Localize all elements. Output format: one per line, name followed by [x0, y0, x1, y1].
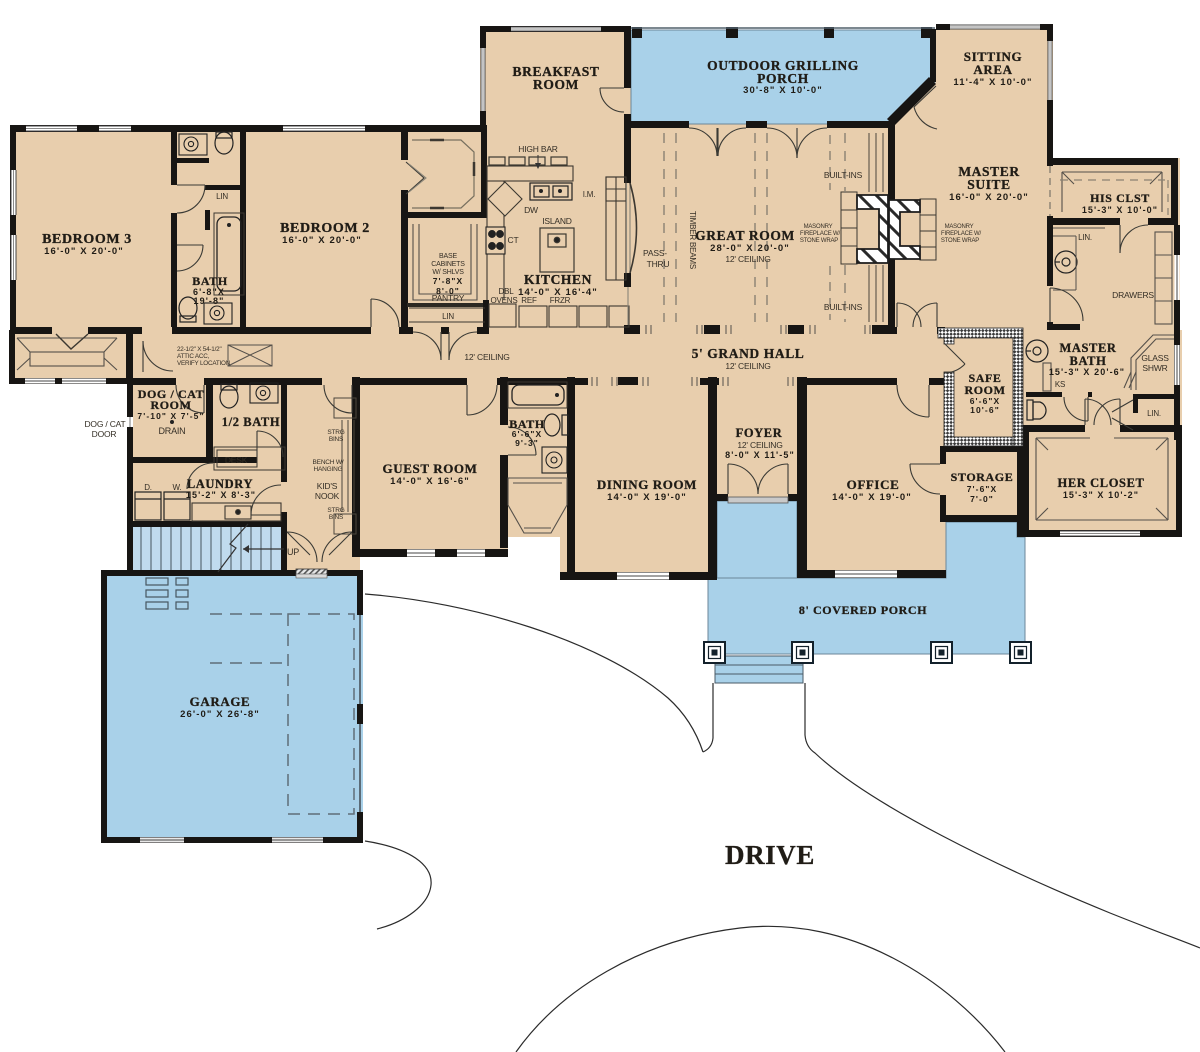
svg-text:HER CLOSET: HER CLOSET	[1058, 476, 1145, 490]
svg-text:MASTER: MASTER	[1059, 341, 1116, 355]
svg-text:1/2 BATH: 1/2 BATH	[222, 415, 280, 429]
svg-text:BENCH W/: BENCH W/	[313, 459, 344, 466]
svg-text:GREAT ROOM: GREAT ROOM	[695, 228, 795, 243]
svg-text:HIS CLST: HIS CLST	[1090, 191, 1150, 205]
svg-text:KITCHEN: KITCHEN	[524, 272, 592, 287]
svg-text:15'-3" X 20'-6": 15'-3" X 20'-6"	[1049, 367, 1125, 377]
svg-text:BASE: BASE	[439, 253, 457, 260]
svg-text:DINING ROOM: DINING ROOM	[597, 477, 697, 492]
svg-text:12' CEILING: 12' CEILING	[725, 361, 770, 371]
svg-text:FIREPLACE W/: FIREPLACE W/	[941, 231, 981, 237]
svg-text:ROOM: ROOM	[964, 383, 1005, 397]
svg-text:OFFICE: OFFICE	[847, 477, 900, 492]
svg-text:GUEST ROOM: GUEST ROOM	[383, 461, 478, 476]
svg-text:14'-0" X 16'-6": 14'-0" X 16'-6"	[390, 476, 470, 487]
svg-text:VERIFY LOCATION: VERIFY LOCATION	[177, 360, 231, 367]
svg-text:GARAGE: GARAGE	[190, 694, 251, 709]
svg-text:ATTIC ACC,: ATTIC ACC,	[177, 353, 210, 360]
svg-text:FOYER: FOYER	[736, 426, 783, 440]
svg-text:7'-0": 7'-0"	[970, 494, 994, 504]
svg-text:GLASS: GLASS	[1141, 353, 1169, 363]
svg-text:STORAGE: STORAGE	[951, 470, 1014, 484]
svg-text:BINS: BINS	[329, 514, 344, 521]
svg-text:STRG: STRG	[327, 507, 344, 514]
svg-text:9'-3": 9'-3"	[515, 438, 539, 448]
svg-text:TIMBER BEAMS: TIMBER BEAMS	[688, 211, 697, 269]
svg-text:12' CEILING: 12' CEILING	[725, 254, 770, 264]
svg-text:ISLAND: ISLAND	[542, 216, 572, 226]
svg-text:MASONRY: MASONRY	[804, 224, 833, 230]
svg-text:7'-10" X 7'-5": 7'-10" X 7'-5"	[137, 411, 204, 421]
svg-text:STONE WRAP: STONE WRAP	[941, 238, 979, 244]
svg-text:ROOM: ROOM	[533, 77, 579, 92]
svg-text:D.: D.	[144, 483, 152, 492]
svg-text:REF: REF	[521, 296, 537, 305]
svg-text:STRG: STRG	[327, 429, 344, 436]
svg-text:8'-0" X 11'-5": 8'-0" X 11'-5"	[725, 450, 795, 460]
svg-text:HIGH BAR: HIGH BAR	[518, 144, 558, 154]
svg-text:LIN.: LIN.	[1078, 233, 1092, 242]
svg-text:W.: W.	[173, 483, 182, 492]
svg-text:DOG / CAT: DOG / CAT	[84, 419, 125, 429]
svg-text:DBL: DBL	[499, 287, 515, 296]
svg-text:CT: CT	[508, 235, 519, 245]
svg-text:SHWR: SHWR	[1142, 363, 1167, 373]
svg-text:LIN.: LIN.	[1147, 409, 1161, 418]
svg-text:14'-0" X 19'-0": 14'-0" X 19'-0"	[832, 492, 912, 503]
svg-text:PORCH: PORCH	[757, 71, 809, 86]
svg-text:I.M.: I.M.	[583, 190, 596, 199]
svg-text:BUILT-INS: BUILT-INS	[824, 302, 863, 312]
svg-text:BEDROOM 3: BEDROOM 3	[42, 232, 132, 247]
svg-text:5' GRAND HALL: 5' GRAND HALL	[692, 346, 805, 361]
svg-text:15'-3" X 10'-2": 15'-3" X 10'-2"	[1063, 490, 1139, 500]
svg-text:OVENS: OVENS	[490, 296, 517, 305]
svg-text:NOOK: NOOK	[315, 491, 340, 501]
svg-text:12' CEILING: 12' CEILING	[737, 440, 782, 450]
svg-text:W/ SHLVS: W/ SHLVS	[432, 269, 464, 276]
svg-text:BEDROOM 2: BEDROOM 2	[280, 221, 370, 236]
svg-text:KID'S: KID'S	[317, 481, 338, 491]
svg-text:16'-0" X 20'-0": 16'-0" X 20'-0"	[282, 235, 362, 246]
svg-text:MASONRY: MASONRY	[945, 224, 974, 230]
svg-text:16'-0" X 20'-0": 16'-0" X 20'-0"	[949, 192, 1029, 203]
svg-text:BATH: BATH	[192, 274, 228, 288]
svg-text:12' CEILING: 12' CEILING	[464, 352, 509, 362]
svg-text:CABINETS: CABINETS	[431, 261, 465, 268]
svg-text:FIREPLACE W/: FIREPLACE W/	[800, 231, 840, 237]
svg-text:30'-8" X 10'-0": 30'-8" X 10'-0"	[743, 85, 823, 96]
svg-text:DRIVE: DRIVE	[725, 840, 815, 870]
svg-text:LIN: LIN	[216, 192, 228, 201]
svg-text:DW: DW	[524, 205, 538, 215]
svg-text:DRAWERS: DRAWERS	[1112, 290, 1154, 300]
svg-text:DESK: DESK	[225, 455, 248, 465]
svg-text:7'-8"X: 7'-8"X	[433, 276, 464, 286]
svg-text:THRU: THRU	[647, 259, 670, 269]
svg-text:FRZR: FRZR	[550, 296, 571, 305]
svg-text:LAUNDRY: LAUNDRY	[187, 477, 253, 491]
svg-text:PANTRY: PANTRY	[432, 293, 465, 303]
svg-text:PASS-: PASS-	[643, 248, 667, 258]
svg-text:10'-6": 10'-6"	[970, 405, 1000, 415]
svg-text:UP: UP	[287, 547, 299, 557]
svg-text:AREA: AREA	[973, 62, 1012, 77]
svg-text:KS: KS	[1055, 380, 1065, 389]
svg-text:SUITE: SUITE	[967, 177, 1011, 192]
svg-text:26'-0" X 26'-8": 26'-0" X 26'-8"	[180, 709, 260, 720]
svg-text:BATH: BATH	[1070, 354, 1107, 368]
svg-text:DRAIN: DRAIN	[158, 426, 185, 436]
svg-text:19'-8": 19'-8"	[193, 296, 224, 306]
svg-text:15'-3" X 10'-0": 15'-3" X 10'-0"	[1082, 205, 1158, 215]
svg-text:DOOR: DOOR	[92, 429, 117, 439]
svg-text:BINS: BINS	[329, 436, 344, 443]
svg-text:28'-0" X 20'-0": 28'-0" X 20'-0"	[710, 243, 790, 254]
svg-text:LIN: LIN	[442, 312, 454, 321]
svg-text:ROOM: ROOM	[150, 398, 191, 412]
svg-text:11'-4" X 10'-0": 11'-4" X 10'-0"	[953, 77, 1032, 88]
svg-text:22-1/2" X 54-1/2": 22-1/2" X 54-1/2"	[177, 346, 221, 353]
svg-text:14'-0" X 19'-0": 14'-0" X 19'-0"	[607, 492, 687, 503]
svg-text:BUILT-INS: BUILT-INS	[824, 170, 863, 180]
svg-text:16'-0" X 20'-0": 16'-0" X 20'-0"	[44, 246, 124, 257]
svg-text:8' COVERED PORCH: 8' COVERED PORCH	[799, 603, 927, 617]
svg-text:STONE WRAP: STONE WRAP	[800, 238, 838, 244]
svg-text:HANGING: HANGING	[314, 466, 343, 473]
svg-text:15'-2" X 8'-3": 15'-2" X 8'-3"	[186, 490, 256, 500]
svg-text:7'-6"X: 7'-6"X	[967, 484, 998, 494]
